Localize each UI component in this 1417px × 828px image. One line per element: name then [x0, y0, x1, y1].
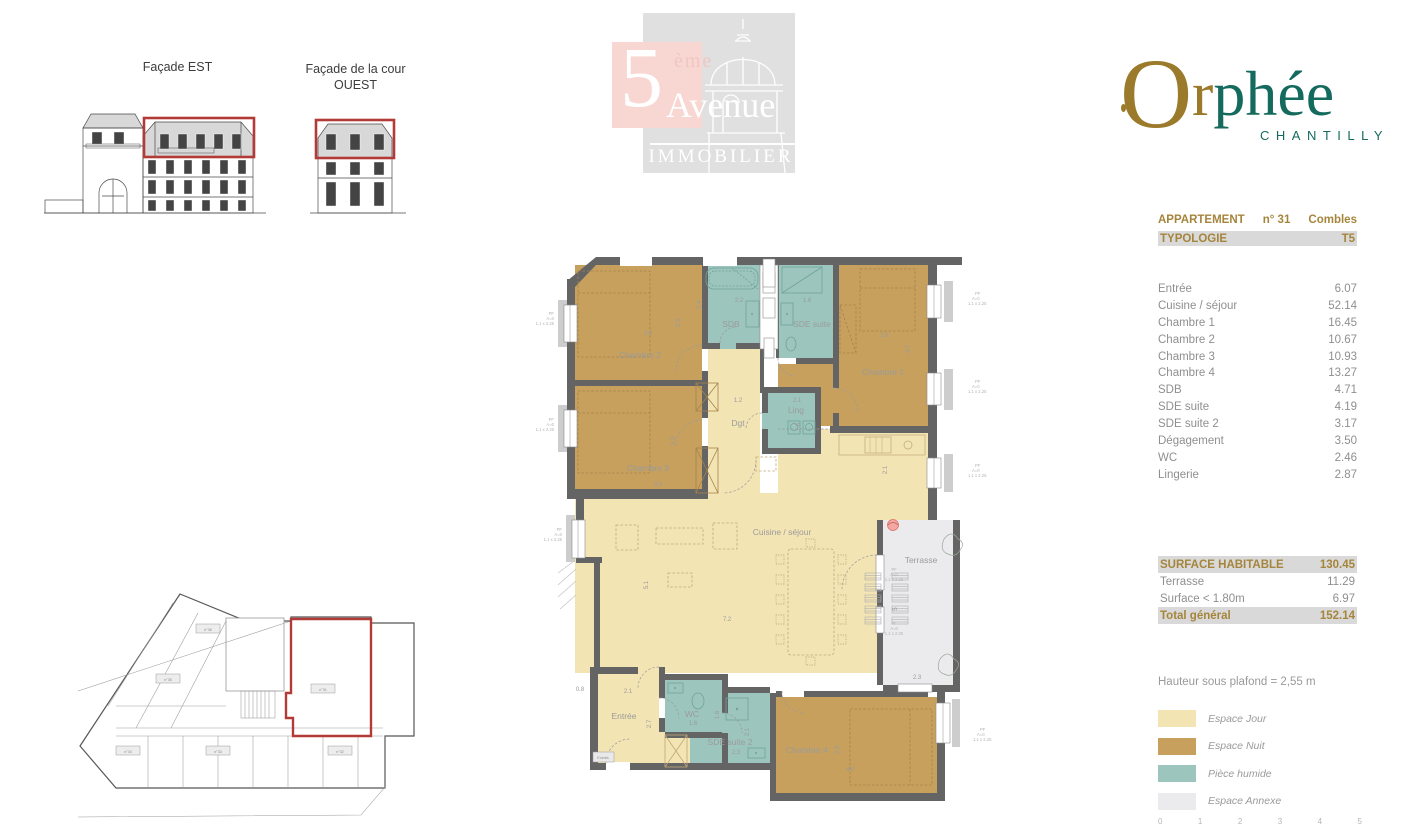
agency-logo-rule [650, 143, 797, 145]
svg-text:PFA=01.1 x 2.25: PFA=01.1 x 2.25 [536, 417, 555, 432]
scale-tick: 4 [1318, 817, 1322, 826]
room-area-table: Entrée6.07 Cuisine / séjour52.14 Chambre… [1158, 283, 1357, 486]
table-row: SDE suite 23.17 [1158, 418, 1357, 435]
svg-text:1.6: 1.6 [715, 710, 721, 719]
room-name: Chambre 3 [1158, 351, 1215, 368]
svg-text:n°34: n°34 [124, 750, 132, 754]
room-name: SDE suite [1158, 401, 1209, 418]
svg-text:n°33: n°33 [214, 750, 222, 754]
facade-east-drawing [42, 96, 270, 221]
surface-area: 130.45 [1320, 559, 1355, 571]
room-area: 3.50 [1335, 435, 1357, 452]
svg-text:PFA=01.1 x 2.25: PFA=01.1 x 2.25 [973, 727, 992, 742]
facade-west-comble-windows [326, 134, 384, 150]
scale-tick: 0 [1158, 817, 1162, 826]
surface-name: Total général [1160, 610, 1231, 622]
room-name: SDE suite 2 [1158, 418, 1219, 435]
table-row: Chambre 413.27 [1158, 367, 1357, 384]
svg-text:n°32: n°32 [336, 750, 344, 754]
svg-text:5.1: 5.1 [644, 580, 650, 589]
brand-logo-name: rphée [1192, 62, 1334, 126]
svg-text:1.6: 1.6 [689, 721, 698, 727]
agency-logo-eme: ème [674, 50, 713, 73]
svg-text:2.9: 2.9 [835, 745, 841, 754]
room-name: SDB [1158, 384, 1182, 401]
surface-basse-row: Surface < 1.80m6.97 [1158, 590, 1357, 607]
agency-logo-avenue: Avenue [666, 84, 775, 126]
legend-label: Espace Jour [1208, 713, 1266, 725]
svg-text:7.2: 7.2 [723, 617, 732, 623]
scale-tick: 5 [1358, 817, 1362, 826]
agency-logo-immobilier: IMMOBILIER [644, 146, 798, 168]
facade-west-label-line1: Façade de la cour [293, 62, 418, 78]
surface-area: 11.29 [1327, 576, 1355, 588]
room-label-terrasse: Terrasse [905, 555, 938, 565]
surface-area: 6.97 [1333, 593, 1355, 605]
svg-text:2.1: 2.1 [793, 398, 802, 404]
room-area: 2.46 [1335, 452, 1357, 469]
room-label-dgt: Dgt [731, 418, 745, 428]
surface-habitable-row: SURFACE HABITABLE130.45 [1158, 556, 1357, 573]
scale-bar: 0 1 2 3 4 5 [1158, 817, 1362, 826]
apartment-header: APPARTEMENT n° 31 Combles [1158, 214, 1357, 226]
svg-text:4.8: 4.8 [846, 767, 855, 773]
brand-logo: O rphée CHANTILLY [1120, 52, 1388, 172]
room-label-cuisine: Cuisine / séjour [753, 527, 812, 537]
svg-text:Enedis: Enedis [597, 756, 609, 760]
table-row: Chambre 210.67 [1158, 334, 1357, 351]
key-plan: n°36 n°35 n°34 n°33 n°32 n°31 [78, 588, 428, 828]
room-label-sde-suite: SDE suite [793, 319, 831, 329]
apartment-level: Combles [1308, 214, 1357, 226]
legend-item: Espace Jour [1158, 705, 1378, 733]
svg-text:2.3: 2.3 [913, 675, 922, 681]
surface-area: 152.14 [1320, 610, 1355, 622]
svg-text:2.8: 2.8 [880, 333, 889, 339]
svg-text:4.7: 4.7 [906, 344, 912, 353]
apartment-header-label: APPARTEMENT [1158, 214, 1245, 226]
facade-west-label: Façade de la cour OUEST [293, 62, 418, 93]
agency-logo-5: 5 [620, 34, 663, 120]
room-area: 13.27 [1328, 367, 1357, 384]
room-area: 4.71 [1335, 384, 1357, 401]
table-row: SDE suite4.19 [1158, 401, 1357, 418]
room-name: Chambre 2 [1158, 334, 1215, 351]
room-label-sde-suite2: SDE suite 2 [708, 737, 753, 747]
room-area: 10.93 [1328, 351, 1357, 368]
scale-tick: 3 [1278, 817, 1282, 826]
legend-item: Pièce humide [1158, 760, 1378, 788]
table-row: Chambre 116.45 [1158, 317, 1357, 334]
room-area: 2.87 [1335, 469, 1357, 486]
room-name: Cuisine / séjour [1158, 300, 1237, 317]
legend-swatch-2 [1158, 765, 1196, 782]
surface-name: SURFACE HABITABLE [1160, 559, 1284, 571]
svg-text:PFA=01.1 x 2.25: PFA=01.1 x 2.25 [544, 527, 563, 542]
brand-logo-dot [1121, 104, 1126, 112]
svg-text:1.6: 1.6 [803, 298, 812, 304]
surface-name: Surface < 1.80m [1160, 593, 1245, 605]
room-name: Lingerie [1158, 469, 1199, 486]
legend-swatch-3 [1158, 793, 1196, 810]
room-label-chambre2: Chambre 2 [619, 350, 661, 360]
svg-text:n°36: n°36 [204, 628, 212, 632]
room-area: 10.67 [1328, 334, 1357, 351]
room-label-chambre4: Chambre 4 [786, 745, 828, 755]
svg-text:PFA=01.1 x 2.25: PFA=01.1 x 2.25 [968, 463, 987, 478]
table-row: Dégagement3.50 [1158, 435, 1357, 452]
facade-west-label-line2: OUEST [293, 78, 418, 94]
room-label-chambre3: Chambre 3 [627, 463, 669, 473]
svg-text:PFA=01.1 x 2.25: PFA=01.1 x 2.25 [968, 379, 987, 394]
svg-text:1.2: 1.2 [734, 398, 743, 404]
room-label-chambre1: Chambre 1 [862, 367, 904, 377]
svg-text:PFA=01.1 x 2.25: PFA=01.1 x 2.25 [536, 311, 555, 326]
legend-swatch-0 [1158, 710, 1196, 727]
svg-text:3.5: 3.5 [676, 318, 682, 327]
table-row: Cuisine / séjour52.14 [1158, 300, 1357, 317]
svg-text:n°35: n°35 [164, 678, 172, 682]
table-row: SDB4.71 [1158, 384, 1357, 401]
agency-logo: 5 ème Avenue IMMOBILIER [608, 10, 823, 178]
scale-tick: 2 [1238, 817, 1242, 826]
surface-name: Terrasse [1160, 576, 1204, 588]
brand-logo-r: r [1192, 58, 1213, 129]
typology-value: T5 [1342, 233, 1355, 245]
room-name: Entrée [1158, 283, 1192, 300]
legend-label: Espace Annexe [1208, 795, 1281, 807]
svg-text:2.2: 2.2 [735, 298, 744, 304]
svg-text:1.6: 1.6 [796, 422, 802, 431]
table-row: Entrée6.07 [1158, 283, 1357, 300]
legend-swatch-1 [1158, 738, 1196, 755]
room-name: Chambre 1 [1158, 317, 1215, 334]
room-area: 4.19 [1335, 401, 1357, 418]
scale-tick: 1 [1198, 817, 1202, 826]
room-area: 3.17 [1335, 418, 1357, 435]
facade-east-windows [148, 160, 246, 211]
surface-summary-table: SURFACE HABITABLE130.45 Terrasse11.29 Su… [1158, 556, 1357, 624]
svg-text:2.1: 2.1 [624, 689, 633, 695]
room-area: 16.45 [1328, 317, 1357, 334]
total-row: Total général152.14 [1158, 607, 1357, 624]
table-row: WC2.46 [1158, 452, 1357, 469]
ceiling-height-note: Hauteur sous plafond = 2,55 m [1158, 676, 1388, 688]
key-plan-unit31-outline [286, 619, 371, 736]
room-label-wc: WC [685, 709, 699, 719]
terrasse-row: Terrasse11.29 [1158, 573, 1357, 590]
svg-text:2.7: 2.7 [647, 719, 653, 728]
brand-logo-city: CHANTILLY [1260, 128, 1389, 143]
svg-text:PFA=01.1 x 2.25: PFA=01.1 x 2.25 [968, 291, 987, 306]
typology-bar: TYPOLOGIE T5 [1158, 231, 1357, 246]
svg-text:n°31: n°31 [319, 688, 327, 692]
table-row: Chambre 310.93 [1158, 351, 1357, 368]
room-label-sdb: SDB [722, 319, 740, 329]
room-label-entree: Entrée [611, 711, 636, 721]
legend-item: Espace Annexe [1158, 788, 1378, 816]
table-row: Lingerie2.87 [1158, 469, 1357, 486]
legend-label: Espace Nuit [1208, 740, 1265, 752]
svg-text:3.3: 3.3 [654, 482, 663, 488]
svg-text:2.1: 2.1 [883, 465, 889, 474]
exterior-notch [558, 561, 576, 609]
svg-text:0.8: 0.8 [576, 687, 585, 693]
enedis-box: Enedis [593, 752, 614, 762]
legend-label: Pièce humide [1208, 768, 1272, 780]
room-name: Dégagement [1158, 435, 1224, 452]
facade-west-windows [326, 162, 384, 206]
room-name: Chambre 4 [1158, 367, 1215, 384]
svg-text:2.3: 2.3 [732, 750, 741, 756]
legend: Espace Jour Espace Nuit Pièce humide Esp… [1158, 705, 1378, 815]
room-area: 6.07 [1335, 283, 1357, 300]
legend-item: Espace Nuit [1158, 733, 1378, 761]
svg-text:2.8: 2.8 [644, 331, 653, 337]
room-label-ling: Ling [788, 405, 804, 415]
floor-plan: Enedis Chambre 2 SDB SDE suite Chambre 1… [520, 243, 1020, 818]
room-area: 52.14 [1328, 300, 1357, 317]
floorplan-sheet: Façade EST Façade de la cour OUEST [0, 0, 1417, 828]
brand-logo-phee: phée [1213, 58, 1334, 129]
room-name: WC [1158, 452, 1177, 469]
svg-text:2.4: 2.4 [697, 300, 703, 309]
typology-label: TYPOLOGIE [1160, 233, 1227, 245]
facade-east-label: Façade EST [100, 60, 255, 76]
brand-logo-o: O [1120, 44, 1192, 144]
apartment-number: n° 31 [1263, 214, 1291, 226]
svg-text:3.3: 3.3 [671, 436, 677, 445]
facade-west-drawing [306, 96, 411, 221]
svg-text:2.1: 2.1 [745, 727, 751, 736]
